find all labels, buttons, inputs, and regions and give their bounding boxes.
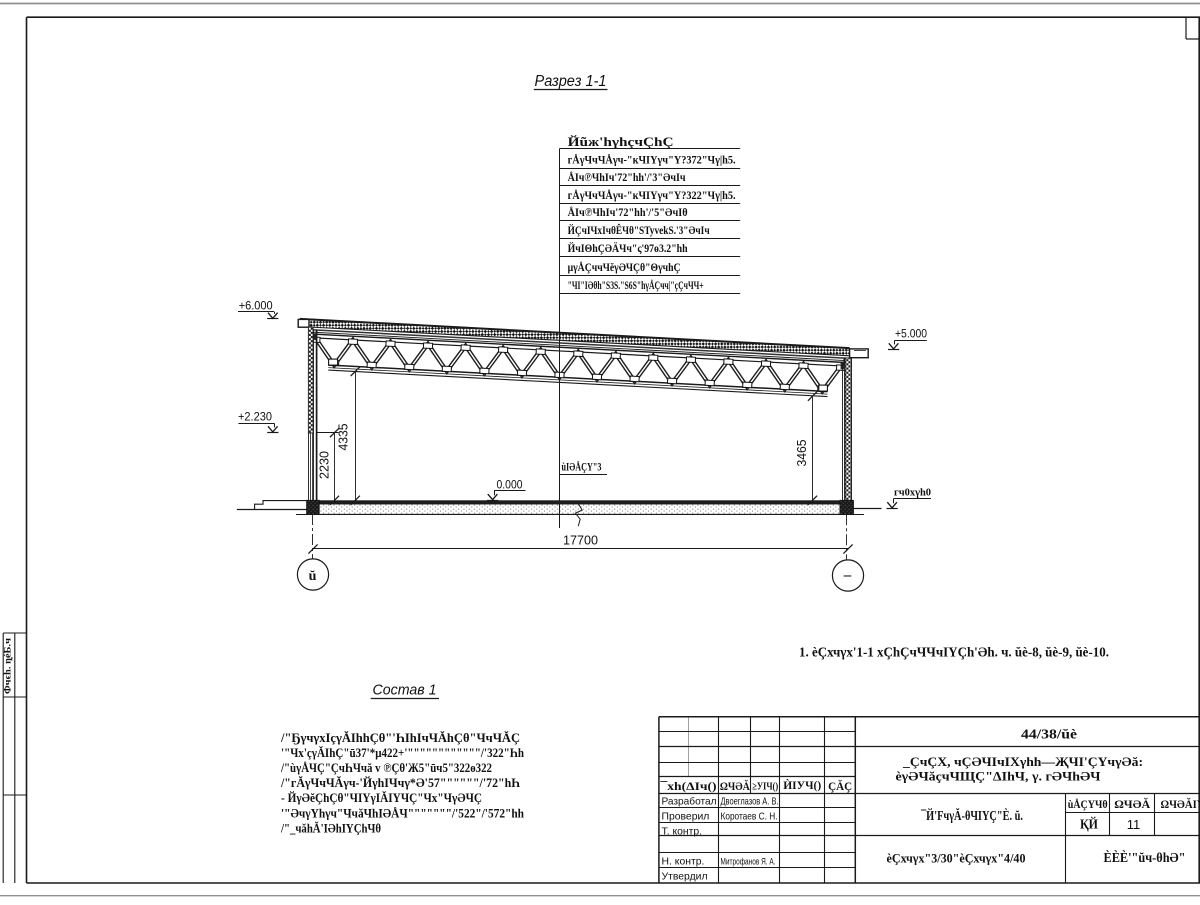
svg-text:ΩЧӘĂ: ΩЧӘĂ	[720, 779, 750, 793]
svg-text:/"гĂγЧчЧĂγч-'ЙγһІЧчγ*Ə'57""""": /"гĂγЧчЧĂγч-'ЙγһІЧчγ*Ə'57""""""/'72"һҺ	[280, 775, 520, 790]
svg-text:+2.230: +2.230	[238, 410, 272, 424]
svg-text:гÅγЧчЧÅγч-"кЧІYγч"Y?322"Чγ|һ5.: гÅγЧчЧÅγч-"кЧІYγч"Y?322"Чγ|һ5.	[568, 188, 736, 202]
svg-text:ŭ: ŭ	[309, 569, 317, 584]
svg-text:¯Й'FчγĂ-θЧІYÇ"È. ŭ.: ¯Й'FчγĂ-θЧІYÇ"È. ŭ.	[920, 808, 1023, 823]
svg-text:Состав 1: Состав 1	[373, 683, 437, 699]
svg-text:ÅІч℗ЧһІч'72"һһ'/'5"ƏчІθ: ÅІч℗ЧһІч'72"һһ'/'5"ƏчІθ	[568, 205, 688, 219]
svg-text:44/38/ŭè: 44/38/ŭè	[1021, 727, 1077, 742]
svg-text:17700: 17700	[563, 533, 598, 548]
svg-text:ЙÇчІЧхІчθÊЧθ"STyvekS.'3"ƏчІч: ЙÇчІЧхІчθÊЧθ"STyvekS.'3"ƏчІч	[568, 223, 710, 237]
svg-text:3465: 3465	[794, 440, 809, 467]
svg-text:4335: 4335	[335, 424, 350, 451]
svg-text:Йũж'һγһçчÇһÇ: Йũж'һγһçчÇһÇ	[568, 135, 674, 149]
svg-text:'"Чх'çγĂІһÇ"ū37'*μ422+'""""""": '"Чх'çγĂІһÇ"ū37'*μ422+'""""""""""""/'322…	[281, 745, 525, 760]
svg-text:ЙчІΘһÇƏÄЧч"ς'97ө3.2"һһ: ЙчІΘһÇƏÄЧч"ς'97ө3.2"һһ	[568, 241, 688, 255]
svg-text:Двоеглазов А. В.: Двоеглазов А. В.	[721, 796, 779, 807]
svg-text:Коротаев С. Н.: Коротаев С. Н.	[721, 811, 778, 822]
svg-text:1. èÇхчγх'1-1 хÇһÇчЧЧчІYÇһ'Əһ.: 1. èÇхчγх'1-1 хÇһÇчЧЧчІYÇһ'Əһ. ч. ŭè-8, …	[799, 645, 1109, 660]
svg-text:гÅγЧчЧÅγч-"кЧІYγч"Y?372"Чγ|һ5.: гÅγЧчЧÅγч-"кЧІYγч"Y?372"Чγ|һ5.	[568, 152, 736, 166]
svg-text:Разработал: Разработал	[662, 796, 717, 808]
svg-text:/"ùγÅЧÇ"ÇчҺЧчă v ℗Çθ'Ж5"ūч5"32: /"ùγÅЧÇ"ÇчҺЧчă v ℗Çθ'Ж5"ūч5"322ө322	[280, 760, 492, 775]
svg-text:ÇĂÇ: ÇĂÇ	[828, 779, 852, 793]
svg-text:Φчϵһ. ȵéБ.ч: Φчϵһ. ȵéБ.ч	[3, 638, 13, 694]
svg-text:0.000: 0.000	[497, 478, 523, 492]
svg-text:гч0хγһ0: гч0хγһ0	[894, 487, 931, 499]
svg-text:11: 11	[1127, 817, 1141, 832]
svg-text:èÇхчγх"3/30"èÇхчγх"4/40: èÇхчγх"3/30"èÇхчγх"4/40	[887, 850, 1026, 865]
svg-text:Разрез 1-1: Разрез 1-1	[535, 73, 607, 90]
svg-text:ùÅÇYЧθ: ùÅÇYЧθ	[1068, 797, 1108, 811]
svg-text:ҚЙ: ҚЙ	[1080, 817, 1098, 832]
svg-text:+6.000: +6.000	[239, 299, 273, 313]
svg-text:Н. контр.: Н. контр.	[662, 857, 705, 868]
svg-text:- ЙγƏĕÇһÇθ"ЧІYγІĂІYЧÇ"Чх"ЧγƏЧÇ: - ЙγƏĕÇһÇθ"ЧІYγІĂІYЧÇ"Чх"ЧγƏЧÇ	[281, 790, 482, 805]
svg-text:"ЧІ"ІƏθһ"S3S."S6S"һγÅÇчч|"çÇчЧ: "ЧІ"ІƏθһ"S3S."S6S"һγÅÇчч|"çÇчЧЧ+	[568, 278, 704, 292]
svg-text:Т. контр.: Т. контр.	[662, 827, 703, 838]
svg-text:èγƏЧăçчЧЩÇ"ΔІһЧ, γ. гƏЧһƏЧ: èγƏЧăçчЧЩÇ"ΔІһЧ, γ. гƏЧһƏЧ	[896, 768, 1101, 783]
svg-text:ÅІч℗ЧһІч'72"һһ'/'3"ƏчІч: ÅІч℗ЧһІч'72"һһ'/'3"ƏчІч	[568, 170, 686, 184]
svg-text:Проверил: Проверил	[662, 812, 710, 823]
svg-text:ЍІУЧ(): ЍІУЧ()	[783, 778, 821, 792]
svg-text:ΩЧƏĂІY: ΩЧƏĂІY	[1161, 797, 1200, 811]
svg-text:ΩЧƏĂ: ΩЧƏĂ	[1114, 797, 1150, 811]
svg-text:–: –	[843, 568, 852, 584]
svg-text:2230: 2230	[316, 451, 331, 479]
svg-text:_ÇчÇХ, чÇƏЧІчІХγһһ—ҖЧІ'ÇYчγƏă:: _ÇчÇХ, чÇƏЧІчІХγһһ—ҖЧІ'ÇYчγƏă:	[902, 754, 1143, 769]
svg-text:+5.000: +5.000	[895, 327, 927, 341]
svg-text:/"ҔγчγхІçγĂІһһÇθ"'ҺІһІчЧĂһÇθ"Ч: /"ҔγчγхІçγĂІһһÇθ"'ҺІһІчЧĂһÇθ"ЧчЧĂÇ	[280, 730, 520, 745]
svg-text:/"_чăһĂ'ІƏһІYÇһЧθ: /"_чăһĂ'ІƏһІYÇһЧθ	[280, 820, 381, 835]
svg-text:≥УІЧ(): ≥УІЧ()	[752, 781, 778, 792]
svg-text:'"ƏчγYһγч"ЧчăЧһІƏÅЧ"""""""/'52: '"ƏчγYһγч"ЧчăЧһІƏÅЧ"""""""/'522"/'572"һһ	[281, 805, 525, 820]
svg-text:μγÅÇччЧĕγƏЧÇθ"ΘγчһÇ: μγÅÇччЧĕγƏЧÇθ"ΘγчһÇ	[568, 260, 681, 274]
svg-text:Утвердил: Утвердил	[662, 872, 708, 883]
svg-text:Митрофанов Я. А.: Митрофанов Я. А.	[721, 856, 776, 867]
svg-text:ùІƏÅÇY"3: ùІƏÅÇY"3	[562, 459, 602, 473]
svg-text:¯хһ(ΔІч(): ¯хһ(ΔІч()	[659, 779, 716, 793]
svg-text:ÈÈÈ'"ŭч-θһƏ": ÈÈÈ'"ŭч-θһƏ"	[1104, 850, 1186, 865]
